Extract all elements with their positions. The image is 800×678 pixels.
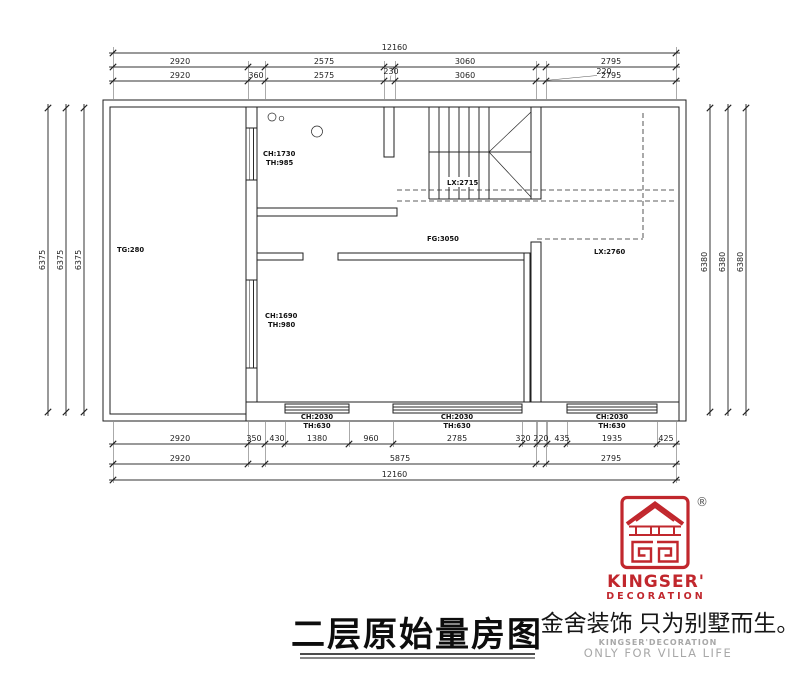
dim-bottom: 2920 350 430 1380 960 2785 320 220 435 1… xyxy=(109,422,680,483)
plumbing-circles xyxy=(268,113,323,137)
dim-label: 3060 xyxy=(455,57,475,66)
window-mid-th: TH:980 xyxy=(268,321,296,329)
room-label-tg: TG:280 xyxy=(117,246,144,254)
wall-rightroom-left xyxy=(531,242,541,402)
window-b2-th: TH:630 xyxy=(443,422,471,430)
logo-spiral-right xyxy=(657,542,678,562)
dim-right: 6380 6380 6380 xyxy=(700,104,749,416)
wall-midroom-top-seg1 xyxy=(257,253,303,260)
page-title: 二层原始量房图 xyxy=(291,616,543,654)
dim-label: 220 xyxy=(533,434,548,443)
logo-wordmark-sub: DECORATION xyxy=(606,591,705,602)
interior-walls xyxy=(246,107,679,421)
title-block: 二层原始量房图 xyxy=(291,616,543,658)
wall-midroom-right xyxy=(524,253,530,402)
dim-label: 2575 xyxy=(314,71,334,80)
dim-label-vertical: 6375 xyxy=(56,250,65,270)
dim-label: 360 xyxy=(248,71,263,80)
drain-circle-small xyxy=(279,116,284,121)
window-left-mid xyxy=(246,280,257,368)
dim-label: 2920 xyxy=(170,57,190,66)
dim-label: 2920 xyxy=(170,71,190,80)
window-b3-th: TH:630 xyxy=(598,422,626,430)
room-labels: TG:280 CH:1730 TH:985 LX:2715 FG:3050 LX… xyxy=(117,150,628,430)
logo-spiral-left xyxy=(633,542,654,562)
dim-label: 430 xyxy=(269,434,284,443)
toilet-circle xyxy=(312,126,323,137)
dim-label: 425 xyxy=(658,434,673,443)
dim-label: 2795 xyxy=(601,454,621,463)
dim-left: 6375 6375 6375 xyxy=(38,104,87,416)
dim-label-vertical: 6375 xyxy=(38,250,47,270)
dim-label-vertical: 6380 xyxy=(718,252,727,272)
dim-label: 320 xyxy=(515,434,530,443)
dim-top: 12160 2920 2575 3060 2795 2920 360 2575 … xyxy=(109,43,680,99)
dim-label: 2785 xyxy=(447,434,467,443)
dim-label-small: 220 xyxy=(596,67,611,76)
brand-block: 金舍装饰 只为别墅而生。 KINGSER'DECORATION ONLY FOR… xyxy=(541,611,800,660)
dim-total-top: 12160 xyxy=(382,43,407,52)
brand-tagline: ONLY FOR VILLA LIFE xyxy=(584,646,733,660)
wall-bath-bottom xyxy=(257,208,397,216)
logo-bar-row xyxy=(629,527,681,536)
dim-label: 2920 xyxy=(170,434,190,443)
window-b3-ch: CH:2030 xyxy=(596,413,629,421)
drain-circle-large xyxy=(268,113,276,121)
dim-label: 3060 xyxy=(455,71,475,80)
window-b1-ch: CH:2030 xyxy=(301,413,334,421)
window-b2-ch: CH:2030 xyxy=(441,413,474,421)
dim-label: 1380 xyxy=(307,434,327,443)
stair-label-lx: LX:2715 xyxy=(447,179,478,187)
dim-label: 435 xyxy=(554,434,569,443)
window-left-top xyxy=(246,128,257,180)
dim-label-vertical: 6380 xyxy=(736,252,745,272)
dim-label: 2575 xyxy=(314,57,334,66)
dim-label-small: 230 xyxy=(383,67,398,76)
wall-bath-stub xyxy=(384,107,394,157)
window-b1-th: TH:630 xyxy=(303,422,331,430)
stair-arrow-up xyxy=(489,112,531,152)
window-bottom-3 xyxy=(567,404,657,413)
wall-midroom-top-seg2 xyxy=(338,253,530,260)
wall-stair-right xyxy=(531,107,541,199)
dim-label: 1935 xyxy=(602,434,622,443)
dim-label-vertical: 6375 xyxy=(74,250,83,270)
dim-label-vertical: 6380 xyxy=(700,252,709,272)
dim-label: 960 xyxy=(363,434,378,443)
window-bottom-2 xyxy=(393,404,522,413)
floor-plan-page: TG:280 CH:1730 TH:985 LX:2715 FG:3050 LX… xyxy=(0,0,800,678)
window-top-th: TH:985 xyxy=(266,159,294,167)
dim-label: 2795 xyxy=(601,57,621,66)
brand-slogan: 金舍装饰 只为别墅而生。 xyxy=(541,611,800,636)
floor-plan-canvas: TG:280 CH:1730 TH:985 LX:2715 FG:3050 LX… xyxy=(0,0,800,678)
window-top-ch: CH:1730 xyxy=(263,150,296,158)
hall-label-fg: FG:3050 xyxy=(427,235,459,243)
windows xyxy=(246,128,657,413)
dim-label: 2920 xyxy=(170,454,190,463)
logo-wordmark: KINGSER' xyxy=(607,572,705,592)
dim-label: 5875 xyxy=(390,454,410,463)
window-mid-ch: CH:1690 xyxy=(265,312,298,320)
kingser-logo: ® KINGSER' DECORATION xyxy=(606,495,708,602)
dim-label: 350 xyxy=(246,434,261,443)
dim-total-bottom: 12160 xyxy=(382,470,407,479)
window-bottom-1 xyxy=(285,404,349,413)
registered-mark: ® xyxy=(696,495,708,509)
rightroom-label-lx: LX:2760 xyxy=(594,248,625,256)
